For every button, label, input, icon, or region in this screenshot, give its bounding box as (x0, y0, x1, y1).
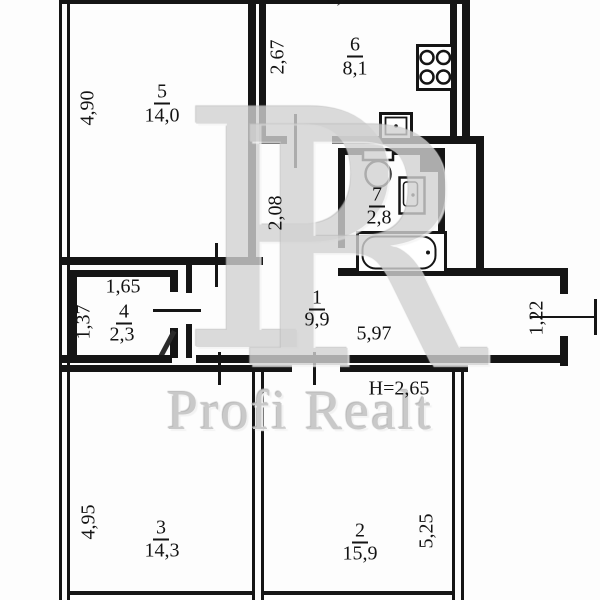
wall-segment (261, 365, 264, 600)
wall-segment (461, 365, 464, 600)
hallway-length-dim: 5,97 (357, 324, 392, 345)
door-opening-marker (153, 309, 201, 312)
wall-segment (186, 324, 192, 358)
room-4-number: 4 (116, 302, 132, 325)
wall-segment (70, 591, 252, 595)
door-opening-marker (218, 352, 221, 385)
corridor-depth-dim: 2,08 (266, 196, 287, 231)
door-opening-marker (294, 114, 297, 168)
entry-width-dim: 1,22 (527, 301, 548, 336)
floor-plan: P R Profi Realt 5 14,0 4,90 3,12 6 8,1 2… (0, 0, 600, 600)
wall-segment (59, 257, 263, 265)
stove-icon (416, 44, 454, 91)
hallway-area: 9,9 (305, 310, 330, 331)
wall-segment (264, 591, 452, 595)
room-4-width-dim: 1,65 (106, 277, 141, 298)
room-5-depth-dim: 4,90 (78, 91, 99, 126)
bathtub-icon (356, 231, 447, 274)
wall-segment (196, 355, 568, 363)
room-5-number: 5 (154, 82, 170, 105)
wall-segment (186, 265, 192, 293)
room-2-number: 2 (352, 521, 368, 544)
room-2-depth-dim: 5,25 (417, 514, 438, 549)
wall-segment (59, 355, 172, 363)
wall-segment (170, 270, 178, 292)
wall-segment (259, 136, 287, 144)
room-4-depth-dim: 1,37 (74, 305, 95, 340)
kitchen-number: 6 (347, 35, 363, 58)
wall-segment (340, 365, 468, 372)
kitchen-sink-icon (379, 112, 413, 141)
wall-segment (476, 136, 484, 276)
water-heater-icon (398, 176, 426, 215)
wall-segment (338, 148, 345, 248)
door-opening-marker (313, 352, 316, 385)
bathroom-area: 2,8 (367, 208, 392, 229)
door-opening-marker (215, 243, 218, 287)
kitchen-depth-dim: 2,67 (268, 40, 289, 75)
wall-segment (560, 336, 568, 366)
room-2-area: 15,9 (343, 544, 378, 565)
room-3-number: 3 (153, 518, 169, 541)
room-3-area: 14,3 (145, 541, 180, 562)
wall-segment (59, 365, 292, 372)
entry-dimension-end (594, 299, 597, 335)
wall-segment (462, 0, 470, 140)
room-3-depth-dim: 4,95 (79, 505, 100, 540)
wall-segment (59, 0, 62, 600)
kitchen-top-width-dim: 3,12 (327, 0, 362, 8)
wall-segment (248, 0, 256, 265)
room-5-area: 14,0 (145, 106, 180, 127)
hallway-number: 1 (309, 288, 325, 311)
wall-segment (452, 365, 455, 600)
ceiling-height-label: H=2,65 (369, 379, 430, 400)
wall-segment (259, 0, 266, 144)
wall-segment (560, 268, 568, 294)
room-4-area: 2,3 (110, 325, 135, 346)
bathroom-number: 7 (369, 185, 385, 208)
kitchen-area: 8,1 (343, 59, 368, 80)
wall-segment (252, 365, 255, 600)
